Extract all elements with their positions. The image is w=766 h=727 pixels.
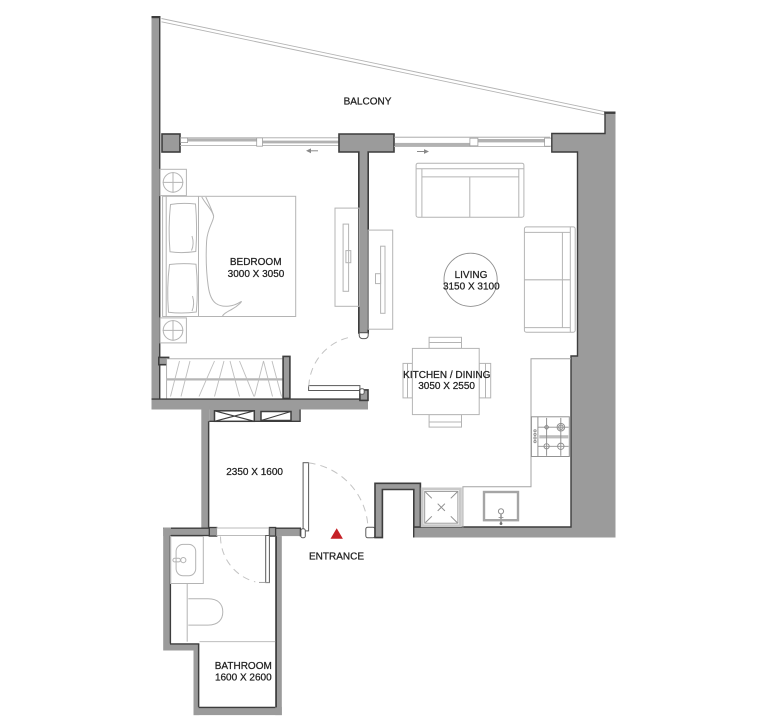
- svg-text:BEDROOM: BEDROOM: [230, 257, 282, 268]
- svg-text:3050 X 2550: 3050 X 2550: [418, 381, 475, 392]
- svg-text:BALCONY: BALCONY: [344, 97, 392, 108]
- svg-text:KITCHEN / DINING: KITCHEN / DINING: [403, 370, 490, 381]
- svg-text:3000 X 3050: 3000 X 3050: [228, 269, 285, 280]
- svg-text:2350 X 1600: 2350 X 1600: [226, 467, 283, 478]
- svg-text:LIVING: LIVING: [455, 270, 488, 281]
- svg-text:ENTRANCE: ENTRANCE: [309, 551, 364, 562]
- svg-text:BATHROOM: BATHROOM: [215, 661, 272, 672]
- svg-text:3150 X 3100: 3150 X 3100: [443, 281, 500, 292]
- svg-text:1600 X 2600: 1600 X 2600: [215, 673, 272, 684]
